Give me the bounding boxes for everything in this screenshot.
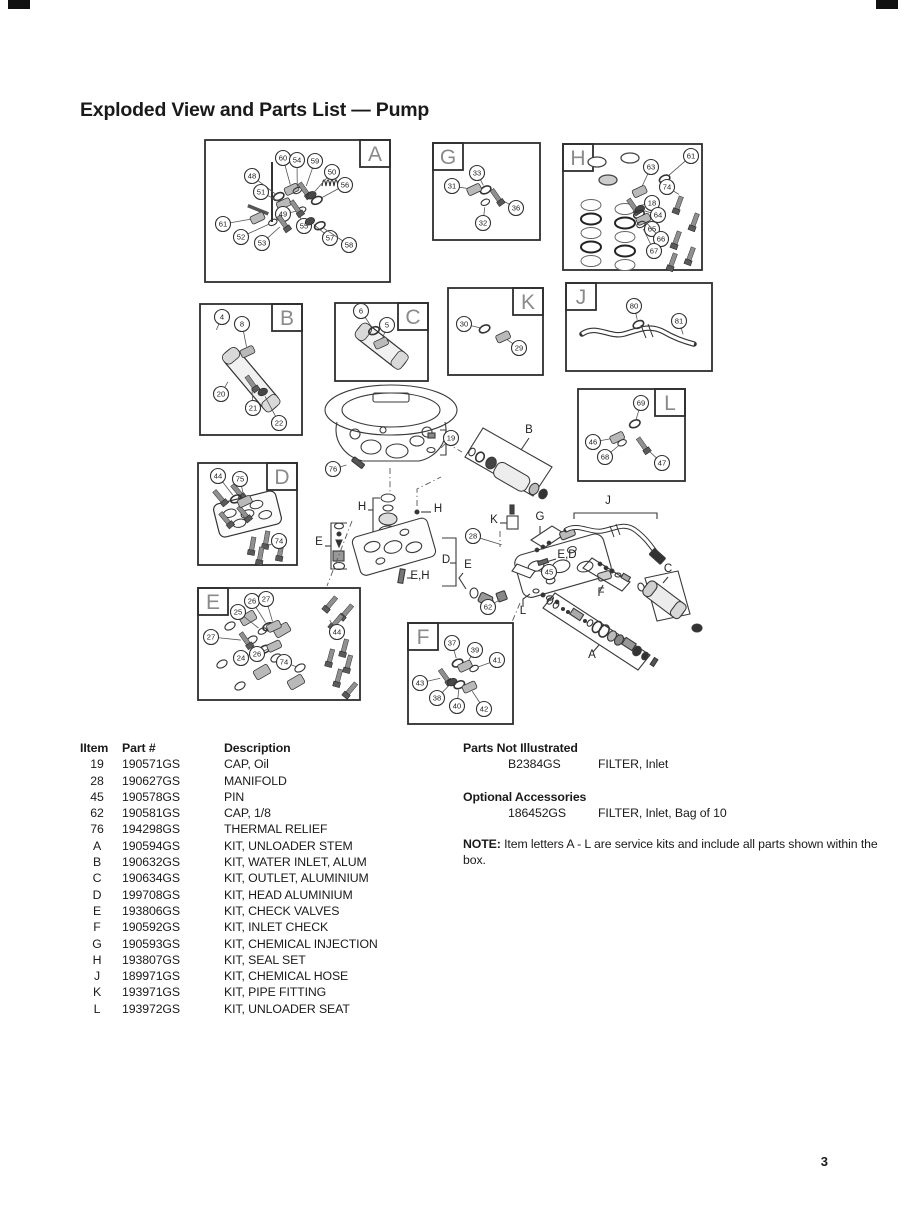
cell-part: 190592GS <box>114 919 224 935</box>
kit-box-G: G33313236 <box>433 143 540 240</box>
svg-text:26: 26 <box>253 650 261 659</box>
assembly-label-E: E <box>315 536 323 548</box>
cell-item: K <box>80 984 114 1000</box>
cell-description: MANIFOLD <box>224 773 458 789</box>
cell-item: A <box>80 838 114 854</box>
table-row: 76194298GSTHERMAL RELIEF <box>80 821 458 837</box>
cell-part: 190634GS <box>114 870 224 886</box>
optional-accessories-row: 186452GS FILTER, Inlet, Bag of 10 <box>463 805 885 821</box>
svg-text:28: 28 <box>469 532 477 541</box>
cell-item: J <box>80 968 114 984</box>
kit-box-J: J8081 <box>566 283 712 371</box>
table-row: 28190627GSMANIFOLD <box>80 773 458 789</box>
not-illustrated-row: B2384GS FILTER, Inlet <box>463 756 885 772</box>
cell-part: B2384GS <box>508 756 598 772</box>
cell-part: 190593GS <box>114 936 224 952</box>
svg-text:20: 20 <box>217 390 225 399</box>
kit-box-F: F37394143384042 <box>408 623 513 724</box>
svg-text:75: 75 <box>236 475 244 484</box>
kit-box-K: K3029 <box>448 288 543 375</box>
assembly-label-K: K <box>490 514 498 526</box>
svg-text:62: 62 <box>484 603 492 612</box>
svg-text:31: 31 <box>448 182 456 191</box>
svg-text:66: 66 <box>657 235 665 244</box>
kit-letter-D: D <box>274 466 289 489</box>
svg-text:74: 74 <box>280 658 288 667</box>
cell-part: 193972GS <box>114 1001 224 1017</box>
cell-description: KIT, UNLOADER STEM <box>224 838 458 854</box>
table-row: B190632GSKIT, WATER INLET, ALUM <box>80 854 458 870</box>
note: NOTE: Item letters A - L are service kit… <box>463 836 881 869</box>
cell-item: 19 <box>80 756 114 772</box>
assembly-label-C: C <box>664 563 672 575</box>
cell-description: KIT, PIPE FITTING <box>224 984 458 1000</box>
assembly-label-D: D <box>442 554 450 566</box>
table-row: A190594GSKIT, UNLOADER STEM <box>80 838 458 854</box>
not-illustrated-heading: Parts Not Illustrated <box>463 740 885 756</box>
kit-box-A: A4860545950565149555758615253 <box>205 140 390 282</box>
right-column: Parts Not Illustrated B2384GS FILTER, In… <box>463 740 885 869</box>
cell-description: KIT, HEAD ALUMINIUM <box>224 887 458 903</box>
svg-text:4: 4 <box>220 313 224 322</box>
table-row: F190592GSKIT, INLET CHECK <box>80 919 458 935</box>
svg-text:48: 48 <box>248 172 256 181</box>
svg-text:43: 43 <box>416 679 424 688</box>
cell-description: KIT, UNLOADER SEAT <box>224 1001 458 1017</box>
assembly-label-E: E <box>464 559 472 571</box>
exploded-view-diagram: A4860545950565149555758615253G33313236H6… <box>0 0 906 1208</box>
svg-text:38: 38 <box>433 694 441 703</box>
svg-text:18: 18 <box>648 199 656 208</box>
svg-text:58: 58 <box>345 241 353 250</box>
cell-item: 28 <box>80 773 114 789</box>
table-row: L193972GSKIT, UNLOADER SEAT <box>80 1001 458 1017</box>
assembly-label-G: G <box>536 511 545 523</box>
kit-letter-K: K <box>521 291 535 314</box>
table-row: 19190571GSCAP, Oil <box>80 756 458 772</box>
note-text: Item letters A - L are service kits and … <box>463 837 878 867</box>
cell-item: L <box>80 1001 114 1017</box>
assembly-label-A: A <box>588 649 596 661</box>
table-row: G190593GSKIT, CHEMICAL INJECTION <box>80 936 458 952</box>
assembly-label-B: B <box>525 424 533 436</box>
svg-text:60: 60 <box>279 154 287 163</box>
cell-item: 62 <box>80 805 114 821</box>
kit-letter-E: E <box>206 591 220 614</box>
table-row: K193971GSKIT, PIPE FITTING <box>80 984 458 1000</box>
svg-text:32: 32 <box>479 219 487 228</box>
assembly-label-L: L <box>520 605 527 617</box>
cell-item: F <box>80 919 114 935</box>
svg-text:74: 74 <box>663 183 671 192</box>
kit-letter-J: J <box>576 286 587 309</box>
cell-description: PIN <box>224 789 458 805</box>
svg-text:63: 63 <box>647 163 655 172</box>
assembly-label-J: J <box>605 495 611 507</box>
svg-text:33: 33 <box>473 169 481 178</box>
table-row: D199708GSKIT, HEAD ALUMINIUM <box>80 887 458 903</box>
assembly-label-H: H <box>358 501 366 513</box>
cell-description: KIT, SEAL SET <box>224 952 458 968</box>
svg-text:64: 64 <box>654 211 662 220</box>
svg-text:27: 27 <box>207 633 215 642</box>
cell-item: E <box>80 903 114 919</box>
cell-description: KIT, CHEMICAL HOSE <box>224 968 458 984</box>
header-item: IItem <box>80 740 114 756</box>
kit-letter-L: L <box>664 392 676 415</box>
cell-part: 190632GS <box>114 854 224 870</box>
svg-text:53: 53 <box>258 239 266 248</box>
cell-description: KIT, OUTLET, ALUMINIUM <box>224 870 458 886</box>
svg-text:50: 50 <box>328 168 336 177</box>
svg-text:37: 37 <box>448 639 456 648</box>
svg-text:46: 46 <box>589 438 597 447</box>
svg-text:41: 41 <box>493 656 501 665</box>
svg-text:74: 74 <box>275 537 283 546</box>
page-number: 3 <box>780 1154 828 1169</box>
cell-description: KIT, CHEMICAL INJECTION <box>224 936 458 952</box>
svg-text:44: 44 <box>333 628 341 637</box>
table-row: 45190578GSPIN <box>80 789 458 805</box>
svg-text:39: 39 <box>471 646 479 655</box>
cell-item: D <box>80 887 114 903</box>
table-row: J189971GSKIT, CHEMICAL HOSE <box>80 968 458 984</box>
svg-text:69: 69 <box>637 399 645 408</box>
kit-letter-B: B <box>280 307 294 330</box>
manual-page: Exploded View and Parts List — Pump <box>0 0 906 1208</box>
svg-text:67: 67 <box>650 247 658 256</box>
cell-description: CAP, Oil <box>224 756 458 772</box>
kit-box-E: E2627252744242674 <box>198 588 360 700</box>
table-row: H193807GSKIT, SEAL SET <box>80 952 458 968</box>
cell-description: FILTER, Inlet <box>598 756 668 772</box>
svg-text:61: 61 <box>219 220 227 229</box>
kit-letter-H: H <box>570 147 585 170</box>
svg-text:61: 61 <box>687 152 695 161</box>
note-label: NOTE: <box>463 837 501 851</box>
svg-text:57: 57 <box>326 234 334 243</box>
optional-accessories: Optional Accessories 186452GS FILTER, In… <box>463 789 885 822</box>
cell-description: FILTER, Inlet, Bag of 10 <box>598 805 727 821</box>
svg-text:76: 76 <box>329 465 337 474</box>
cell-item: 45 <box>80 789 114 805</box>
svg-text:42: 42 <box>480 705 488 714</box>
cell-part: 190578GS <box>114 789 224 805</box>
table-row: 62190581GSCAP, 1/8 <box>80 805 458 821</box>
table-row: C190634GSKIT, OUTLET, ALUMINIUM <box>80 870 458 886</box>
cell-description: KIT, CHECK VALVES <box>224 903 458 919</box>
svg-text:19: 19 <box>447 434 455 443</box>
svg-text:44: 44 <box>214 472 222 481</box>
svg-text:29: 29 <box>515 344 523 353</box>
parts-table-header: IItem Part # Description <box>80 740 458 756</box>
svg-text:52: 52 <box>237 233 245 242</box>
parts-table-rows: 19190571GSCAP, Oil28190627GSMANIFOLD4519… <box>80 756 458 1017</box>
kit-letter-G: G <box>440 146 456 169</box>
cell-item: B <box>80 854 114 870</box>
cell-part: 186452GS <box>508 805 598 821</box>
table-row: E193806GSKIT, CHECK VALVES <box>80 903 458 919</box>
optional-accessories-heading: Optional Accessories <box>463 789 885 805</box>
cell-item: C <box>80 870 114 886</box>
svg-text:51: 51 <box>257 188 265 197</box>
svg-text:36: 36 <box>512 204 520 213</box>
cell-part: 190581GS <box>114 805 224 821</box>
svg-text:56: 56 <box>341 181 349 190</box>
svg-text:54: 54 <box>293 156 301 165</box>
kit-box-L: L69466847 <box>578 389 685 481</box>
kit-box-H: H6163741864656667 <box>563 144 702 272</box>
cell-part: 193806GS <box>114 903 224 919</box>
kit-letter-F: F <box>417 626 430 649</box>
svg-text:22: 22 <box>275 419 283 428</box>
svg-text:5: 5 <box>385 321 389 330</box>
cell-part: 190594GS <box>114 838 224 854</box>
svg-text:25: 25 <box>234 608 242 617</box>
assembly-label-E-D: E,D <box>557 549 576 561</box>
cell-part: 190571GS <box>114 756 224 772</box>
cell-description: CAP, 1/8 <box>224 805 458 821</box>
kit-box-C: C65 <box>335 303 428 381</box>
assembly-label-E-H: E,H <box>410 570 429 582</box>
svg-text:59: 59 <box>311 157 319 166</box>
cell-description: KIT, WATER INLET, ALUM <box>224 854 458 870</box>
assembly-label-H: H <box>434 503 442 515</box>
svg-text:26: 26 <box>248 597 256 606</box>
parts-not-illustrated: Parts Not Illustrated B2384GS FILTER, In… <box>463 740 885 773</box>
cell-part: 193807GS <box>114 952 224 968</box>
svg-text:68: 68 <box>601 453 609 462</box>
cell-description: KIT, INLET CHECK <box>224 919 458 935</box>
cell-item: H <box>80 952 114 968</box>
svg-text:40: 40 <box>453 702 461 711</box>
svg-text:30: 30 <box>460 320 468 329</box>
header-description: Description <box>224 740 458 756</box>
svg-text:47: 47 <box>658 459 666 468</box>
cell-part: 189971GS <box>114 968 224 984</box>
header-part: Part # <box>114 740 224 756</box>
cell-part: 199708GS <box>114 887 224 903</box>
cell-description: THERMAL RELIEF <box>224 821 458 837</box>
kit-letter-A: A <box>368 143 382 166</box>
cell-part: 194298GS <box>114 821 224 837</box>
cell-item: G <box>80 936 114 952</box>
svg-text:27: 27 <box>262 595 270 604</box>
kit-box-D: D447574 <box>198 463 297 566</box>
svg-text:81: 81 <box>675 317 683 326</box>
assembly-label-F: F <box>597 587 604 599</box>
cell-part: 190627GS <box>114 773 224 789</box>
svg-text:8: 8 <box>240 320 244 329</box>
parts-table: IItem Part # Description 19190571GSCAP, … <box>80 740 458 1017</box>
svg-text:6: 6 <box>359 307 363 316</box>
cell-item: 76 <box>80 821 114 837</box>
svg-text:80: 80 <box>630 302 638 311</box>
svg-text:21: 21 <box>249 404 257 413</box>
svg-text:24: 24 <box>237 654 245 663</box>
cell-part: 193971GS <box>114 984 224 1000</box>
svg-text:45: 45 <box>545 568 553 577</box>
kit-letter-C: C <box>405 306 420 329</box>
kit-box-B: B48202122 <box>200 304 302 435</box>
